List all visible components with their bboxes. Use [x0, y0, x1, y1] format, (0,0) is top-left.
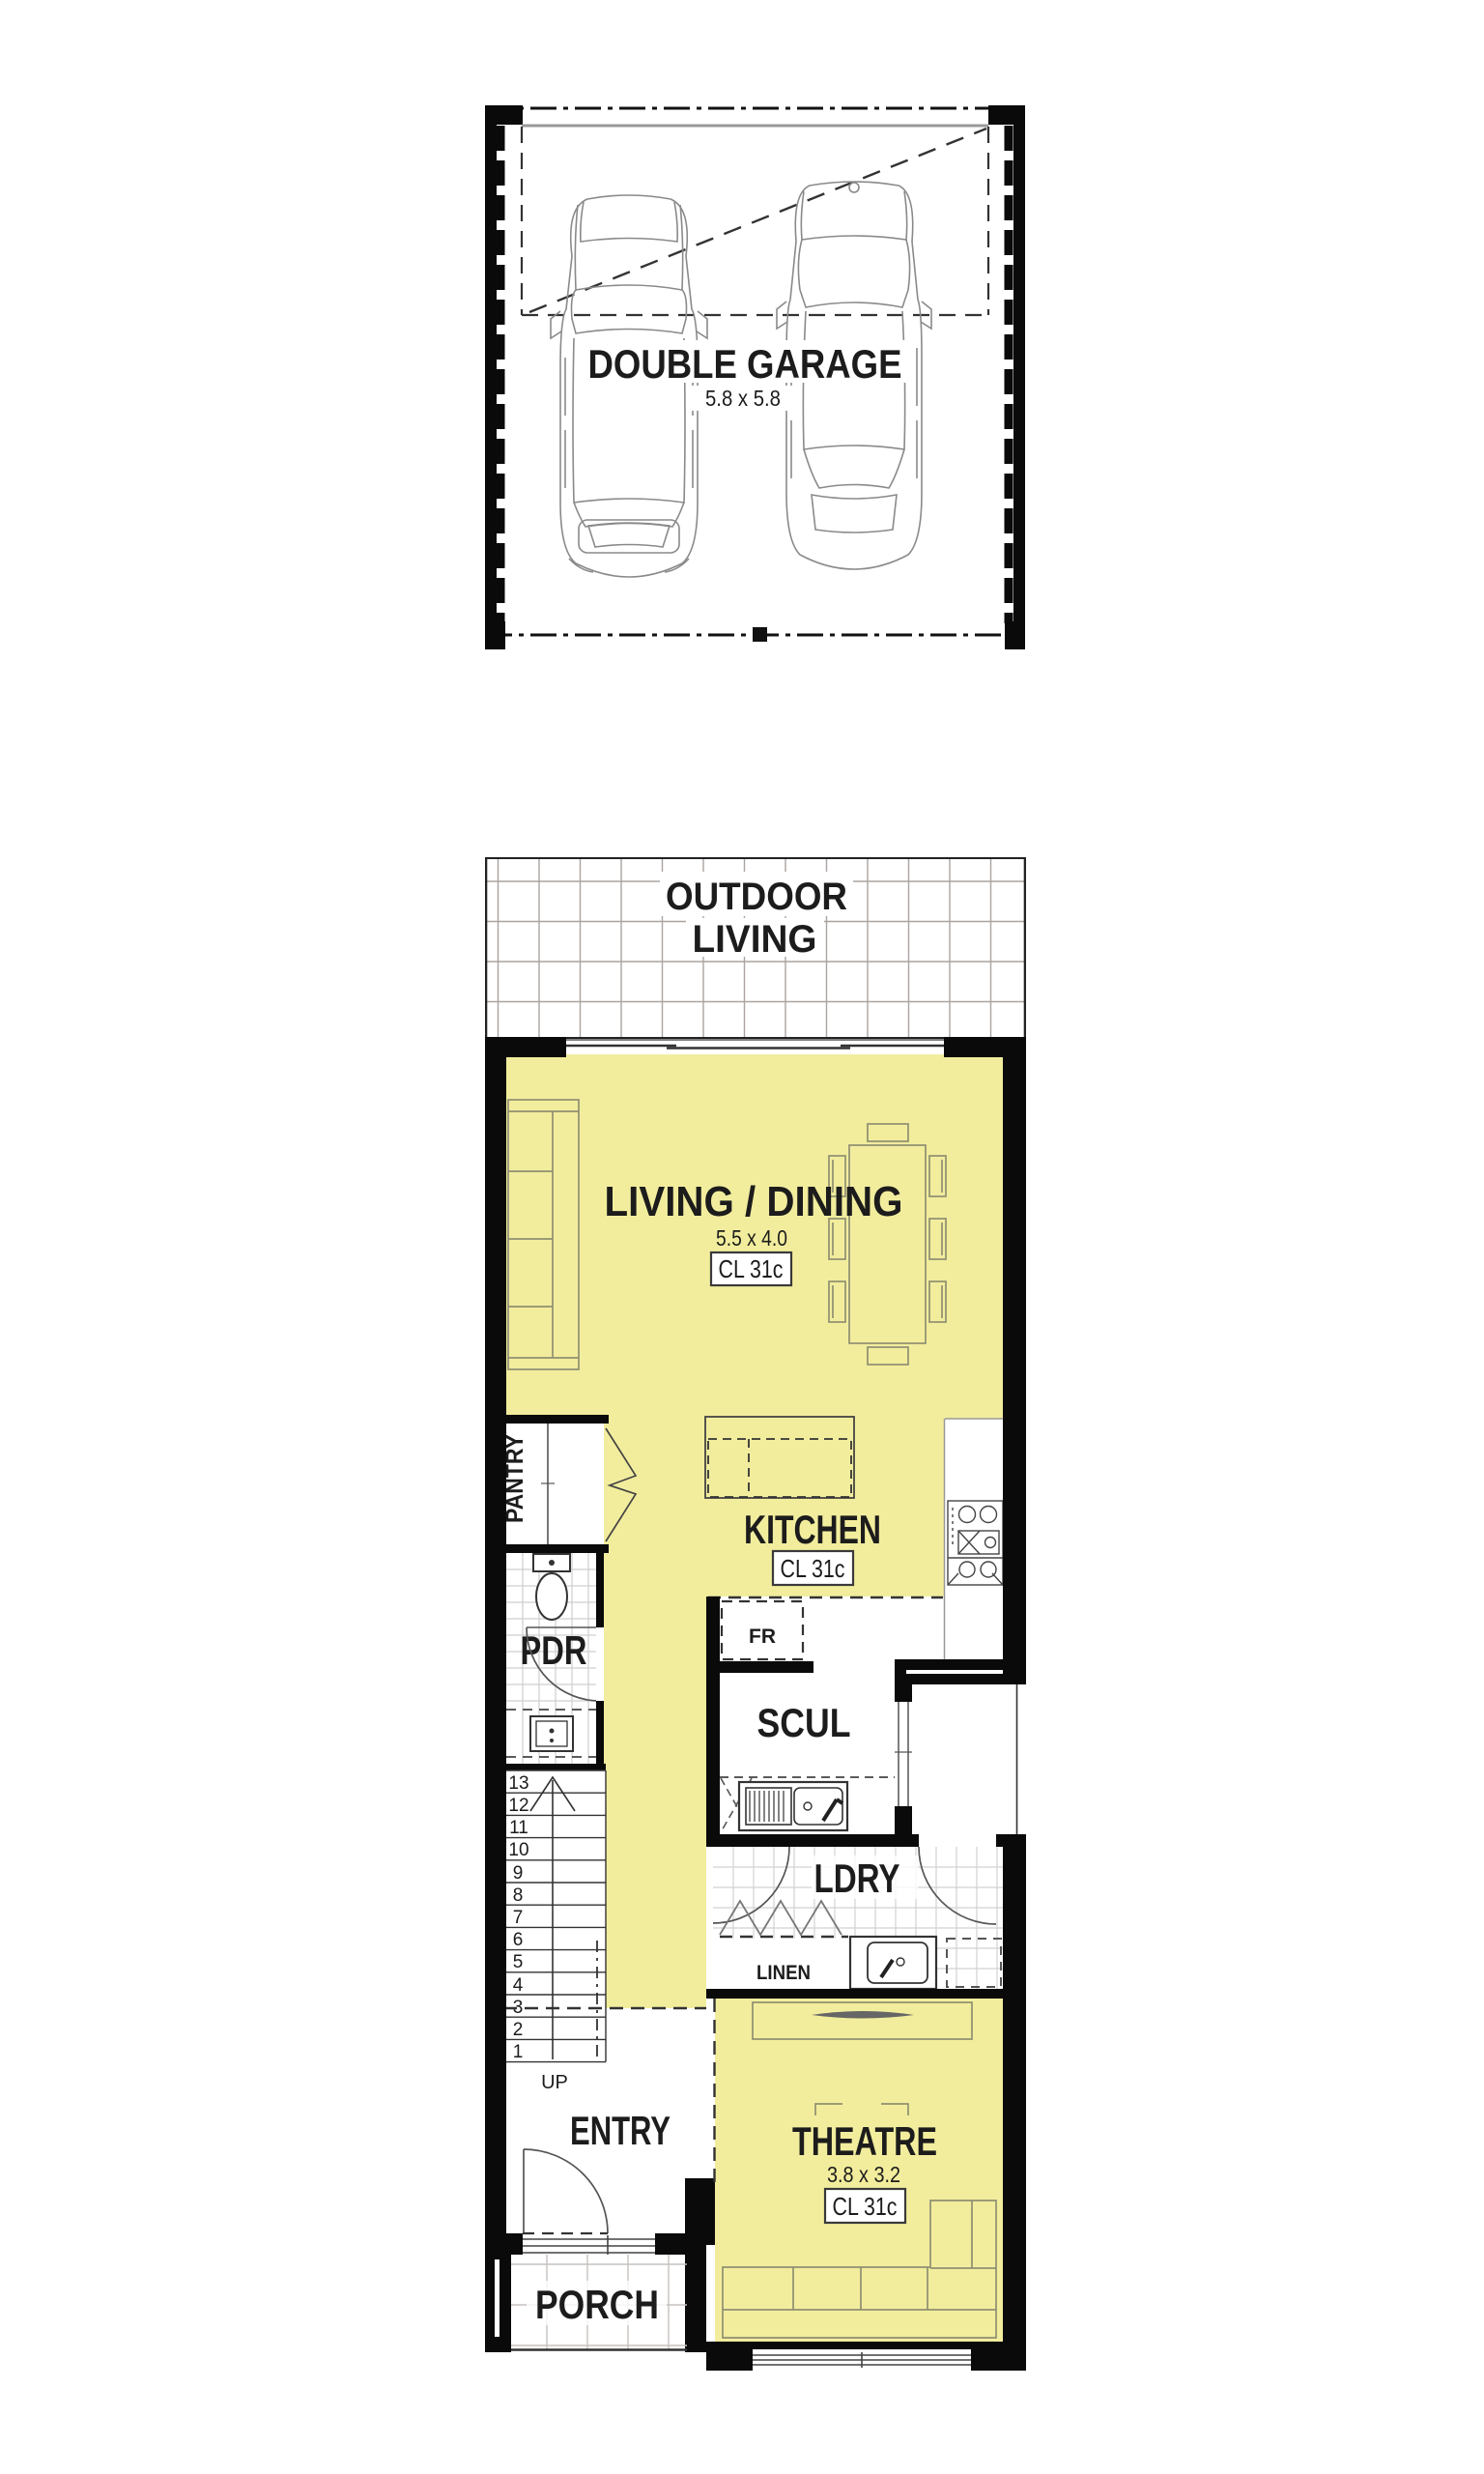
- svg-text:6: 6: [513, 1930, 524, 1950]
- svg-text:THEATRE: THEATRE: [792, 2118, 937, 2164]
- svg-text:5.5 x 4.0: 5.5 x 4.0: [716, 1225, 787, 1251]
- svg-text:LINEN: LINEN: [756, 1962, 811, 1984]
- svg-text:UP: UP: [541, 2072, 568, 2093]
- svg-text:CL 31c: CL 31c: [719, 1254, 784, 1283]
- svg-text:10: 10: [508, 1840, 528, 1860]
- svg-text:DOUBLE GARAGE: DOUBLE GARAGE: [588, 341, 902, 387]
- svg-text:1: 1: [513, 2042, 524, 2062]
- svg-text:7: 7: [513, 1908, 524, 1928]
- svg-text:OUTDOOR: OUTDOOR: [666, 876, 847, 918]
- svg-text:8: 8: [513, 1885, 524, 1906]
- svg-text:12: 12: [508, 1796, 528, 1816]
- svg-text:ENTRY: ENTRY: [570, 2108, 671, 2153]
- svg-text:FR: FR: [749, 1625, 776, 1648]
- svg-text:5: 5: [513, 1952, 524, 1972]
- svg-text:11: 11: [509, 1818, 528, 1838]
- svg-text:CL 31c: CL 31c: [833, 2192, 898, 2221]
- svg-text:9: 9: [513, 1863, 524, 1884]
- svg-text:5.8 x 5.8: 5.8 x 5.8: [705, 386, 781, 411]
- svg-text:13: 13: [508, 1773, 528, 1794]
- svg-text:4: 4: [513, 1975, 524, 1996]
- svg-text:LIVING / DINING: LIVING / DINING: [605, 1178, 903, 1225]
- svg-text:KITCHEN: KITCHEN: [744, 1507, 881, 1552]
- svg-text:2: 2: [513, 2020, 524, 2040]
- svg-text:LDRY: LDRY: [814, 1855, 900, 1901]
- svg-text:CL 31c: CL 31c: [781, 1554, 845, 1583]
- svg-text:PORCH: PORCH: [535, 2282, 659, 2327]
- svg-text:3.8 x 3.2: 3.8 x 3.2: [827, 2162, 900, 2187]
- svg-text:LIVING: LIVING: [693, 918, 817, 961]
- svg-text:SCUL: SCUL: [757, 1700, 851, 1745]
